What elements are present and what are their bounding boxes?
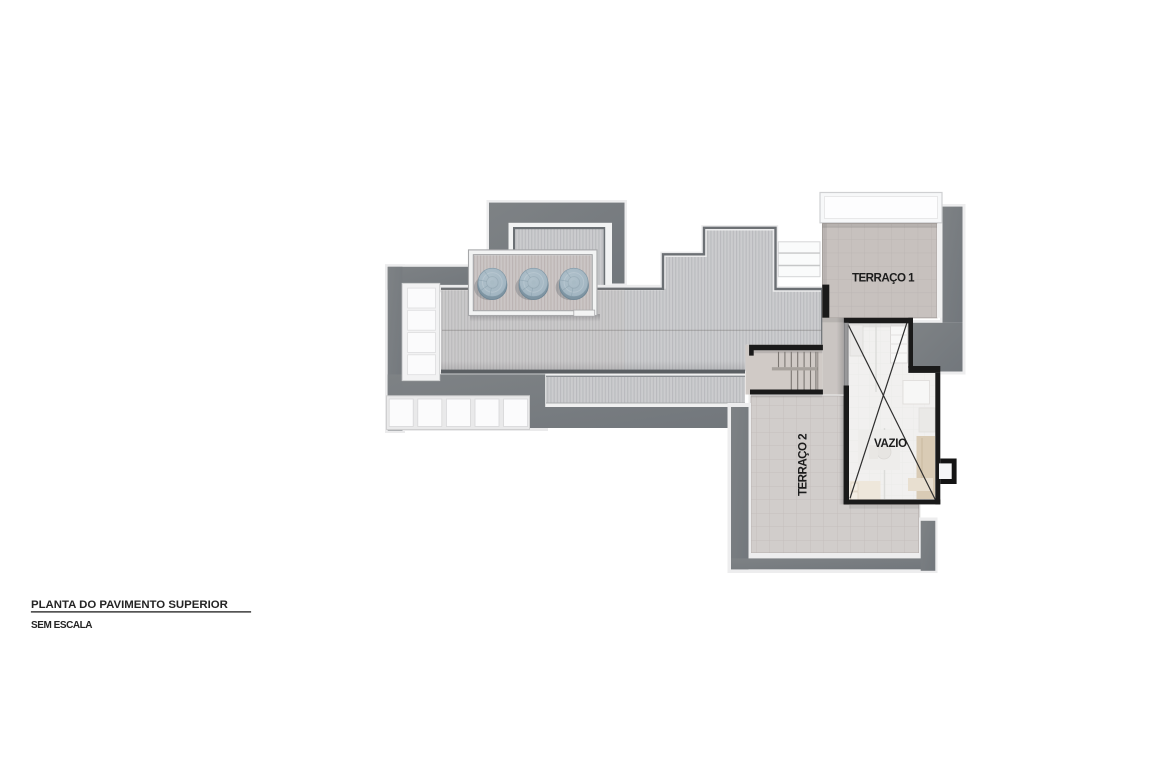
svg-text:VAZIO: VAZIO bbox=[874, 438, 907, 450]
svg-text:PLANTA DO PAVIMENTO SUPERIOR: PLANTA DO PAVIMENTO SUPERIOR bbox=[31, 599, 228, 611]
svg-text:TERRAÇO 1: TERRAÇO 1 bbox=[852, 272, 915, 285]
svg-text:SEM ESCALA: SEM ESCALA bbox=[31, 620, 92, 631]
svg-text:TERRAÇO 2: TERRAÇO 2 bbox=[797, 434, 810, 496]
